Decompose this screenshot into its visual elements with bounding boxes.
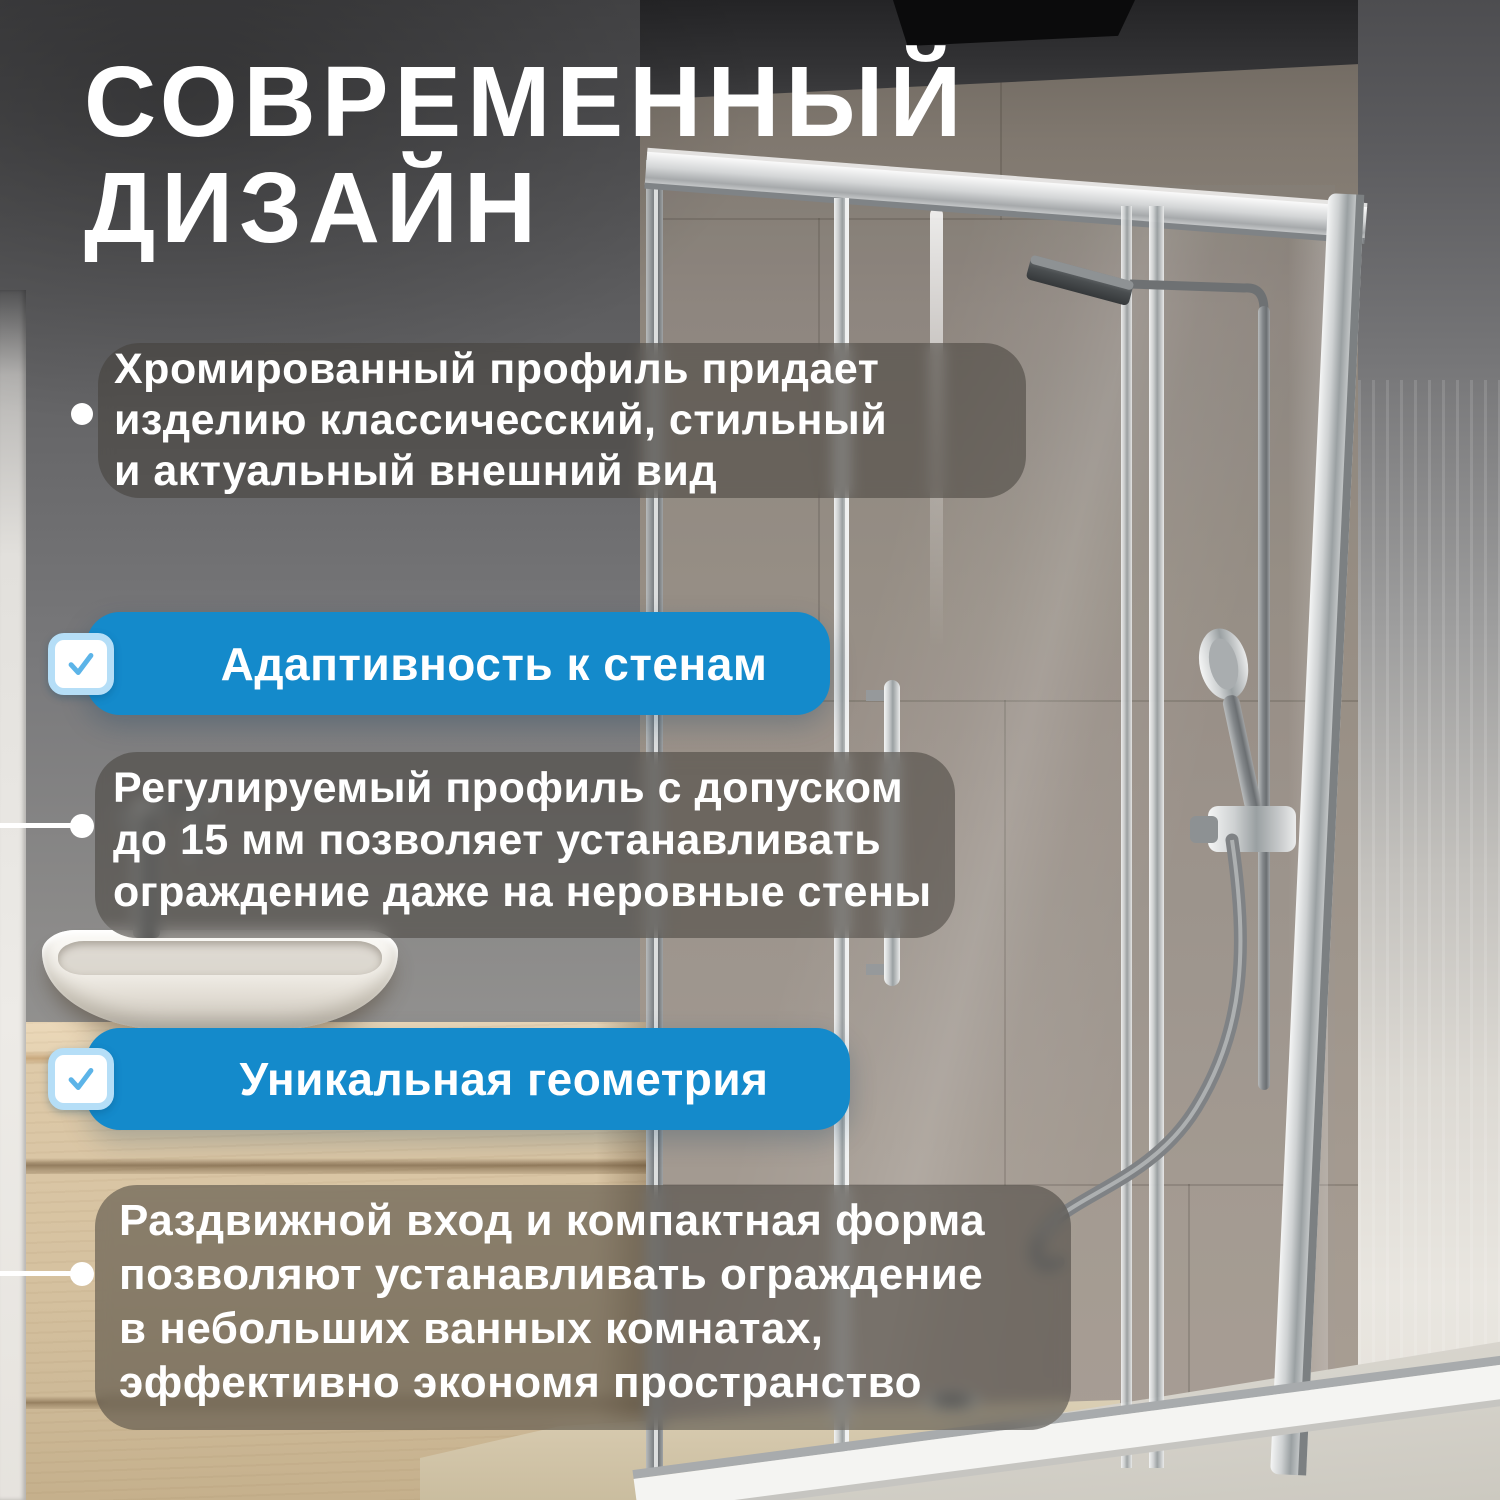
- note-line: в небольших ванных комнатах,: [119, 1302, 1071, 1356]
- checkmark-icon: [48, 633, 114, 695]
- note-line: Раздвижной вход и компактная форма: [119, 1194, 1071, 1248]
- note-line: до 15 мм позволяет устанавливать: [113, 814, 955, 866]
- note-line: изделию классичесский, стильный: [114, 395, 1026, 446]
- leader-dot: [70, 1262, 94, 1286]
- drawer-gap: [26, 1158, 656, 1174]
- feature-note-adjustable-profile: Регулируемый профиль с допуском до 15 мм…: [95, 752, 955, 938]
- glass-edge-highlight: [1288, 210, 1328, 1440]
- badge-wall-adaptivity: Адаптивность к стенам: [86, 612, 830, 715]
- badge-label: Уникальная геометрия: [239, 1052, 768, 1106]
- sink-basin: [58, 941, 382, 975]
- bullet-dot: [71, 403, 93, 425]
- checkmark-icon: [48, 1048, 114, 1110]
- note-line: Хромированный профиль придает: [114, 344, 1026, 395]
- note-line: ограждение даже на неровные стены: [113, 866, 955, 918]
- leader-line: [0, 823, 76, 828]
- feature-note-sliding-entry: Раздвижной вход и компактная форма позво…: [95, 1185, 1071, 1430]
- note-line: Регулируемый профиль с допуском: [113, 762, 955, 814]
- badge-label: Адаптивность к стенам: [221, 637, 768, 691]
- note-line: и актуальный внешний вид: [114, 446, 1026, 497]
- note-line: позволяют устанавливать ограждение: [119, 1248, 1071, 1302]
- badge-unique-geometry: Уникальная геометрия: [86, 1028, 850, 1130]
- feature-note-chrome-profile: Хромированный профиль придает изделию кл…: [98, 343, 1026, 498]
- title-line-1: СОВРЕМЕННЫЙ: [84, 49, 967, 155]
- title-line-2: ДИЗАЙН: [84, 155, 967, 261]
- note-line: эффективно экономя пространство: [119, 1356, 1071, 1410]
- leader-dot: [70, 814, 94, 838]
- leader-line: [0, 1271, 76, 1276]
- page-title: СОВРЕМЕННЫЙ ДИЗАЙН: [84, 49, 967, 261]
- promo-slide: СОВРЕМЕННЫЙ ДИЗАЙН Хромированный профиль…: [0, 0, 1500, 1500]
